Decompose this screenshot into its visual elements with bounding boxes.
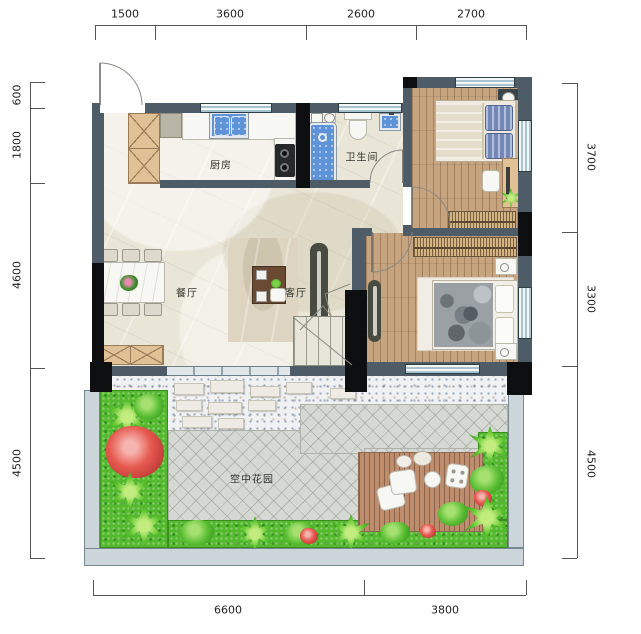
dim-label: 2700 xyxy=(457,8,485,21)
kitchen-window xyxy=(200,103,272,113)
table-dot xyxy=(451,469,456,474)
room-label-bathroom: 卫生间 xyxy=(346,149,379,164)
staircase xyxy=(293,316,353,366)
dim-tick xyxy=(526,25,527,40)
wall xyxy=(92,113,104,263)
dim-tick xyxy=(526,580,527,595)
toilet-tank xyxy=(344,112,372,120)
dim-line xyxy=(95,25,526,26)
dining-chair xyxy=(144,249,162,262)
stepping-slab xyxy=(174,383,204,395)
room-label-kitchen: 厨房 xyxy=(210,157,232,172)
column xyxy=(345,290,367,392)
deck-pebble xyxy=(413,451,432,466)
bedroom2-tv-panel xyxy=(368,280,381,342)
duvet xyxy=(434,283,493,347)
wash-basin xyxy=(380,114,400,130)
dining-chair xyxy=(122,249,140,262)
kitchen-double-sink xyxy=(210,112,248,138)
stepping-slab xyxy=(208,402,242,414)
kitchen-corner-counter xyxy=(160,113,182,138)
dim-line xyxy=(30,82,31,558)
room-label-sky-garden: 空中花园 xyxy=(230,471,274,486)
room-label-living: 客厅 xyxy=(285,285,307,300)
dim-tick xyxy=(562,83,577,84)
desk-chair xyxy=(482,170,500,192)
dim-label: 2600 xyxy=(347,8,375,21)
bed xyxy=(432,280,518,350)
sink-basin xyxy=(214,116,230,136)
burner-icon xyxy=(280,149,289,158)
garden-wall-bottom xyxy=(84,548,524,566)
dim-label: 3800 xyxy=(431,604,459,617)
column xyxy=(507,362,532,395)
deck-side-table xyxy=(444,463,469,490)
dim-tick xyxy=(30,108,45,109)
wall xyxy=(352,236,366,290)
bedroom2-side-window xyxy=(518,287,532,339)
deck-pebble xyxy=(396,455,412,468)
bathtub xyxy=(309,123,336,184)
duvet xyxy=(436,103,484,159)
stepping-slab xyxy=(286,382,312,394)
tv-console xyxy=(310,243,328,325)
pillow xyxy=(495,317,514,345)
dining-chair xyxy=(122,303,140,316)
stepping-slab xyxy=(210,380,244,393)
dim-tick xyxy=(155,25,156,40)
bed xyxy=(435,100,520,162)
living-garden-sliding-door xyxy=(167,366,290,376)
deck-round-table xyxy=(424,471,441,488)
table-dot xyxy=(459,479,464,484)
nightstand xyxy=(495,258,517,275)
cabinet-x-panel xyxy=(128,148,160,184)
dim-label: 3300 xyxy=(585,285,598,313)
nightstand xyxy=(495,343,517,360)
pillow xyxy=(485,105,513,131)
dim-label: 3600 xyxy=(216,8,244,21)
deck-lounge-chair xyxy=(388,468,417,495)
washer-icon xyxy=(311,113,323,123)
dim-tick xyxy=(416,25,417,40)
red-flower-bush-icon xyxy=(300,528,318,544)
burner-icon xyxy=(280,163,289,172)
pillow xyxy=(495,285,514,313)
tabletop-item xyxy=(256,270,267,280)
column xyxy=(92,263,104,363)
table-dot xyxy=(450,478,455,483)
dim-tick xyxy=(364,580,365,595)
dim-line xyxy=(93,595,526,596)
wall xyxy=(290,366,345,376)
dim-tick xyxy=(93,580,94,595)
dim-label: 1800 xyxy=(11,131,24,159)
stepping-slab xyxy=(176,400,202,411)
cabinet-x-panel xyxy=(130,345,164,365)
red-flower-bush-icon xyxy=(106,426,164,478)
toilet-bowl xyxy=(349,120,367,140)
tub-drain-icon xyxy=(318,133,327,142)
dining-chair xyxy=(144,303,162,316)
dim-tick xyxy=(30,183,45,184)
garden-wall-left xyxy=(84,390,100,558)
column xyxy=(403,77,417,88)
dim-tick xyxy=(30,558,45,559)
wall xyxy=(92,103,100,113)
dim-label: 4500 xyxy=(585,450,598,478)
stepping-slab xyxy=(250,386,280,397)
table-plant-icon xyxy=(271,279,281,288)
dim-label: 4500 xyxy=(11,449,24,477)
dim-tick xyxy=(306,25,307,40)
dim-label: 1500 xyxy=(111,8,139,21)
wardrobe-rail xyxy=(449,221,515,223)
lamp-icon xyxy=(500,263,509,272)
bedroom2-garden-window xyxy=(405,364,480,374)
tv-screen xyxy=(317,251,321,317)
dim-tick xyxy=(562,232,577,233)
dim-label: 6600 xyxy=(214,604,242,617)
lamp-icon xyxy=(500,348,509,357)
tv-screen xyxy=(373,286,377,336)
kitchen-tall-cabinet xyxy=(128,113,160,183)
bedroom1-side-window xyxy=(518,120,532,172)
lounge-chair xyxy=(270,288,286,302)
room-label-dining: 餐厅 xyxy=(176,285,198,300)
dim-tick xyxy=(562,366,577,367)
wall xyxy=(403,225,412,236)
tabletop-item xyxy=(256,291,267,302)
garden-tile-plaza xyxy=(300,404,508,454)
cabinet-x-panel xyxy=(128,113,160,149)
wall xyxy=(160,180,296,188)
wall xyxy=(112,366,167,376)
floor-plan: 1500 3600 2600 2700 600 1800 4600 4500 3… xyxy=(0,0,641,634)
bedroom2-wardrobe xyxy=(413,237,517,257)
dim-label: 4600 xyxy=(11,261,24,289)
red-flower-bush-icon xyxy=(420,524,436,538)
pillow xyxy=(485,133,513,159)
sink-basin xyxy=(231,116,247,136)
washer-drum-icon xyxy=(324,113,335,123)
column xyxy=(518,212,532,256)
dim-tick xyxy=(562,558,577,559)
stepping-slab xyxy=(248,400,276,411)
column xyxy=(296,103,310,188)
dim-tick xyxy=(30,82,45,83)
bedroom1-window xyxy=(455,77,515,88)
wardrobe-rail xyxy=(414,247,516,249)
column xyxy=(90,362,112,392)
stepping-slab xyxy=(182,416,212,428)
dim-label: 600 xyxy=(11,85,24,106)
wall xyxy=(352,228,372,236)
dim-tick xyxy=(95,25,96,40)
stepping-slab xyxy=(218,418,244,429)
bathroom-window xyxy=(338,103,402,113)
wall xyxy=(403,88,412,187)
dim-line xyxy=(577,83,578,558)
wall xyxy=(412,228,532,236)
stove-cooktop xyxy=(275,144,295,177)
entry-door-arc xyxy=(100,63,142,105)
dim-label: 3700 xyxy=(585,143,598,171)
dim-tick xyxy=(30,368,45,369)
table-dot xyxy=(460,470,465,475)
garden-wall-right xyxy=(508,392,524,548)
